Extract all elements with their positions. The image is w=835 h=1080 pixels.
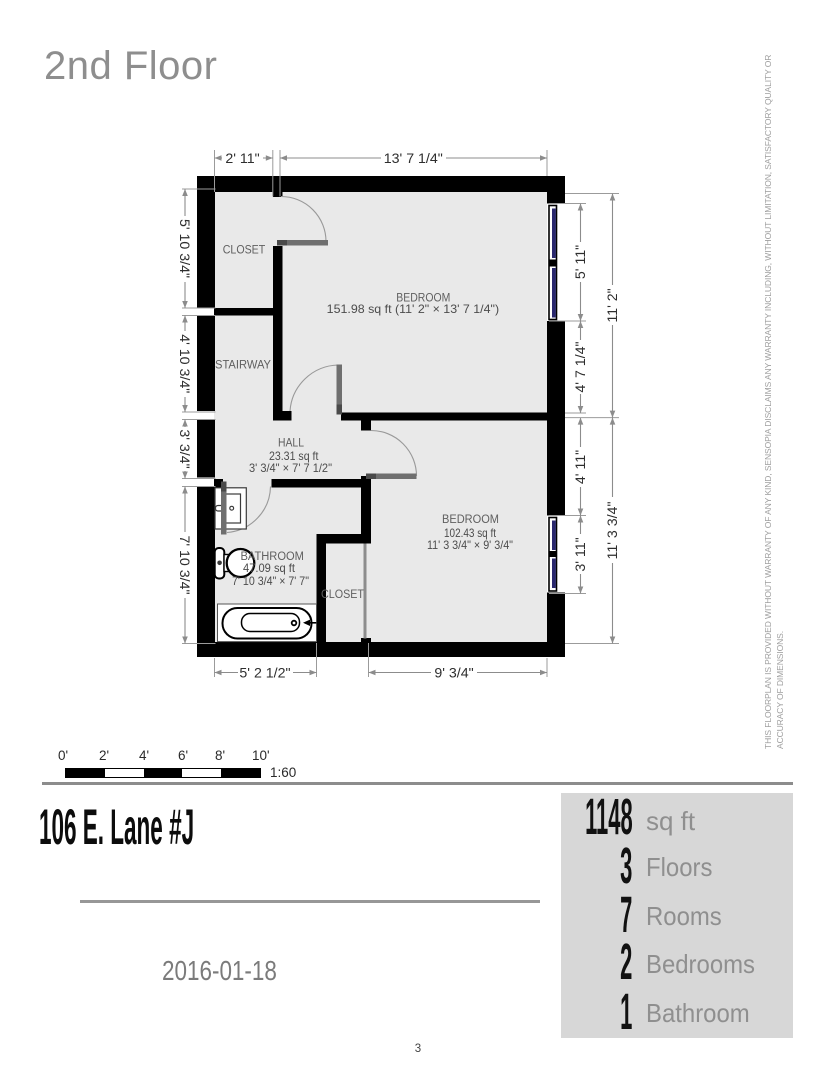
- svg-text:151.98 sq ft (11' 2" × 13' 7 1: 151.98 sq ft (11' 2" × 13' 7 1/4"): [327, 302, 499, 316]
- svg-text:5' 2 1/2": 5' 2 1/2": [239, 666, 290, 682]
- svg-text:3' 3/4" × 7' 7 1/2": 3' 3/4" × 7' 7 1/2": [249, 461, 332, 475]
- svg-text:9' 3/4": 9' 3/4": [434, 666, 473, 682]
- svg-text:4' 11": 4' 11": [573, 450, 589, 484]
- svg-text:47.09 sq ft: 47.09 sq ft: [243, 561, 296, 575]
- svg-text:STAIRWAY: STAIRWAY: [215, 358, 271, 372]
- svg-text:5' 11": 5' 11": [573, 245, 589, 279]
- svg-text:11' 2": 11' 2": [605, 288, 621, 322]
- svg-text:2' 11": 2' 11": [225, 151, 259, 167]
- svg-text:7' 10 3/4" × 7' 7": 7' 10 3/4" × 7' 7": [232, 574, 309, 588]
- svg-text:4' 10 3/4": 4' 10 3/4": [176, 334, 192, 393]
- svg-text:7' 10 3/4": 7' 10 3/4": [176, 535, 192, 594]
- svg-text:13' 7 1/4": 13' 7 1/4": [384, 151, 443, 167]
- svg-text:CLOSET: CLOSET: [223, 243, 266, 257]
- svg-text:BEDROOM: BEDROOM: [442, 512, 499, 526]
- svg-text:3' 3/4": 3' 3/4": [176, 429, 192, 468]
- svg-text:11' 3 3/4" × 9' 3/4": 11' 3 3/4" × 9' 3/4": [427, 538, 513, 552]
- svg-text:HALL: HALL: [278, 436, 304, 450]
- svg-text:CLOSET: CLOSET: [321, 587, 364, 601]
- svg-text:5' 10 3/4": 5' 10 3/4": [176, 219, 192, 278]
- svg-text:11' 3 3/4": 11' 3 3/4": [605, 502, 621, 560]
- svg-text:4' 7 1/4": 4' 7 1/4": [573, 341, 589, 392]
- svg-text:3' 11": 3' 11": [573, 537, 589, 571]
